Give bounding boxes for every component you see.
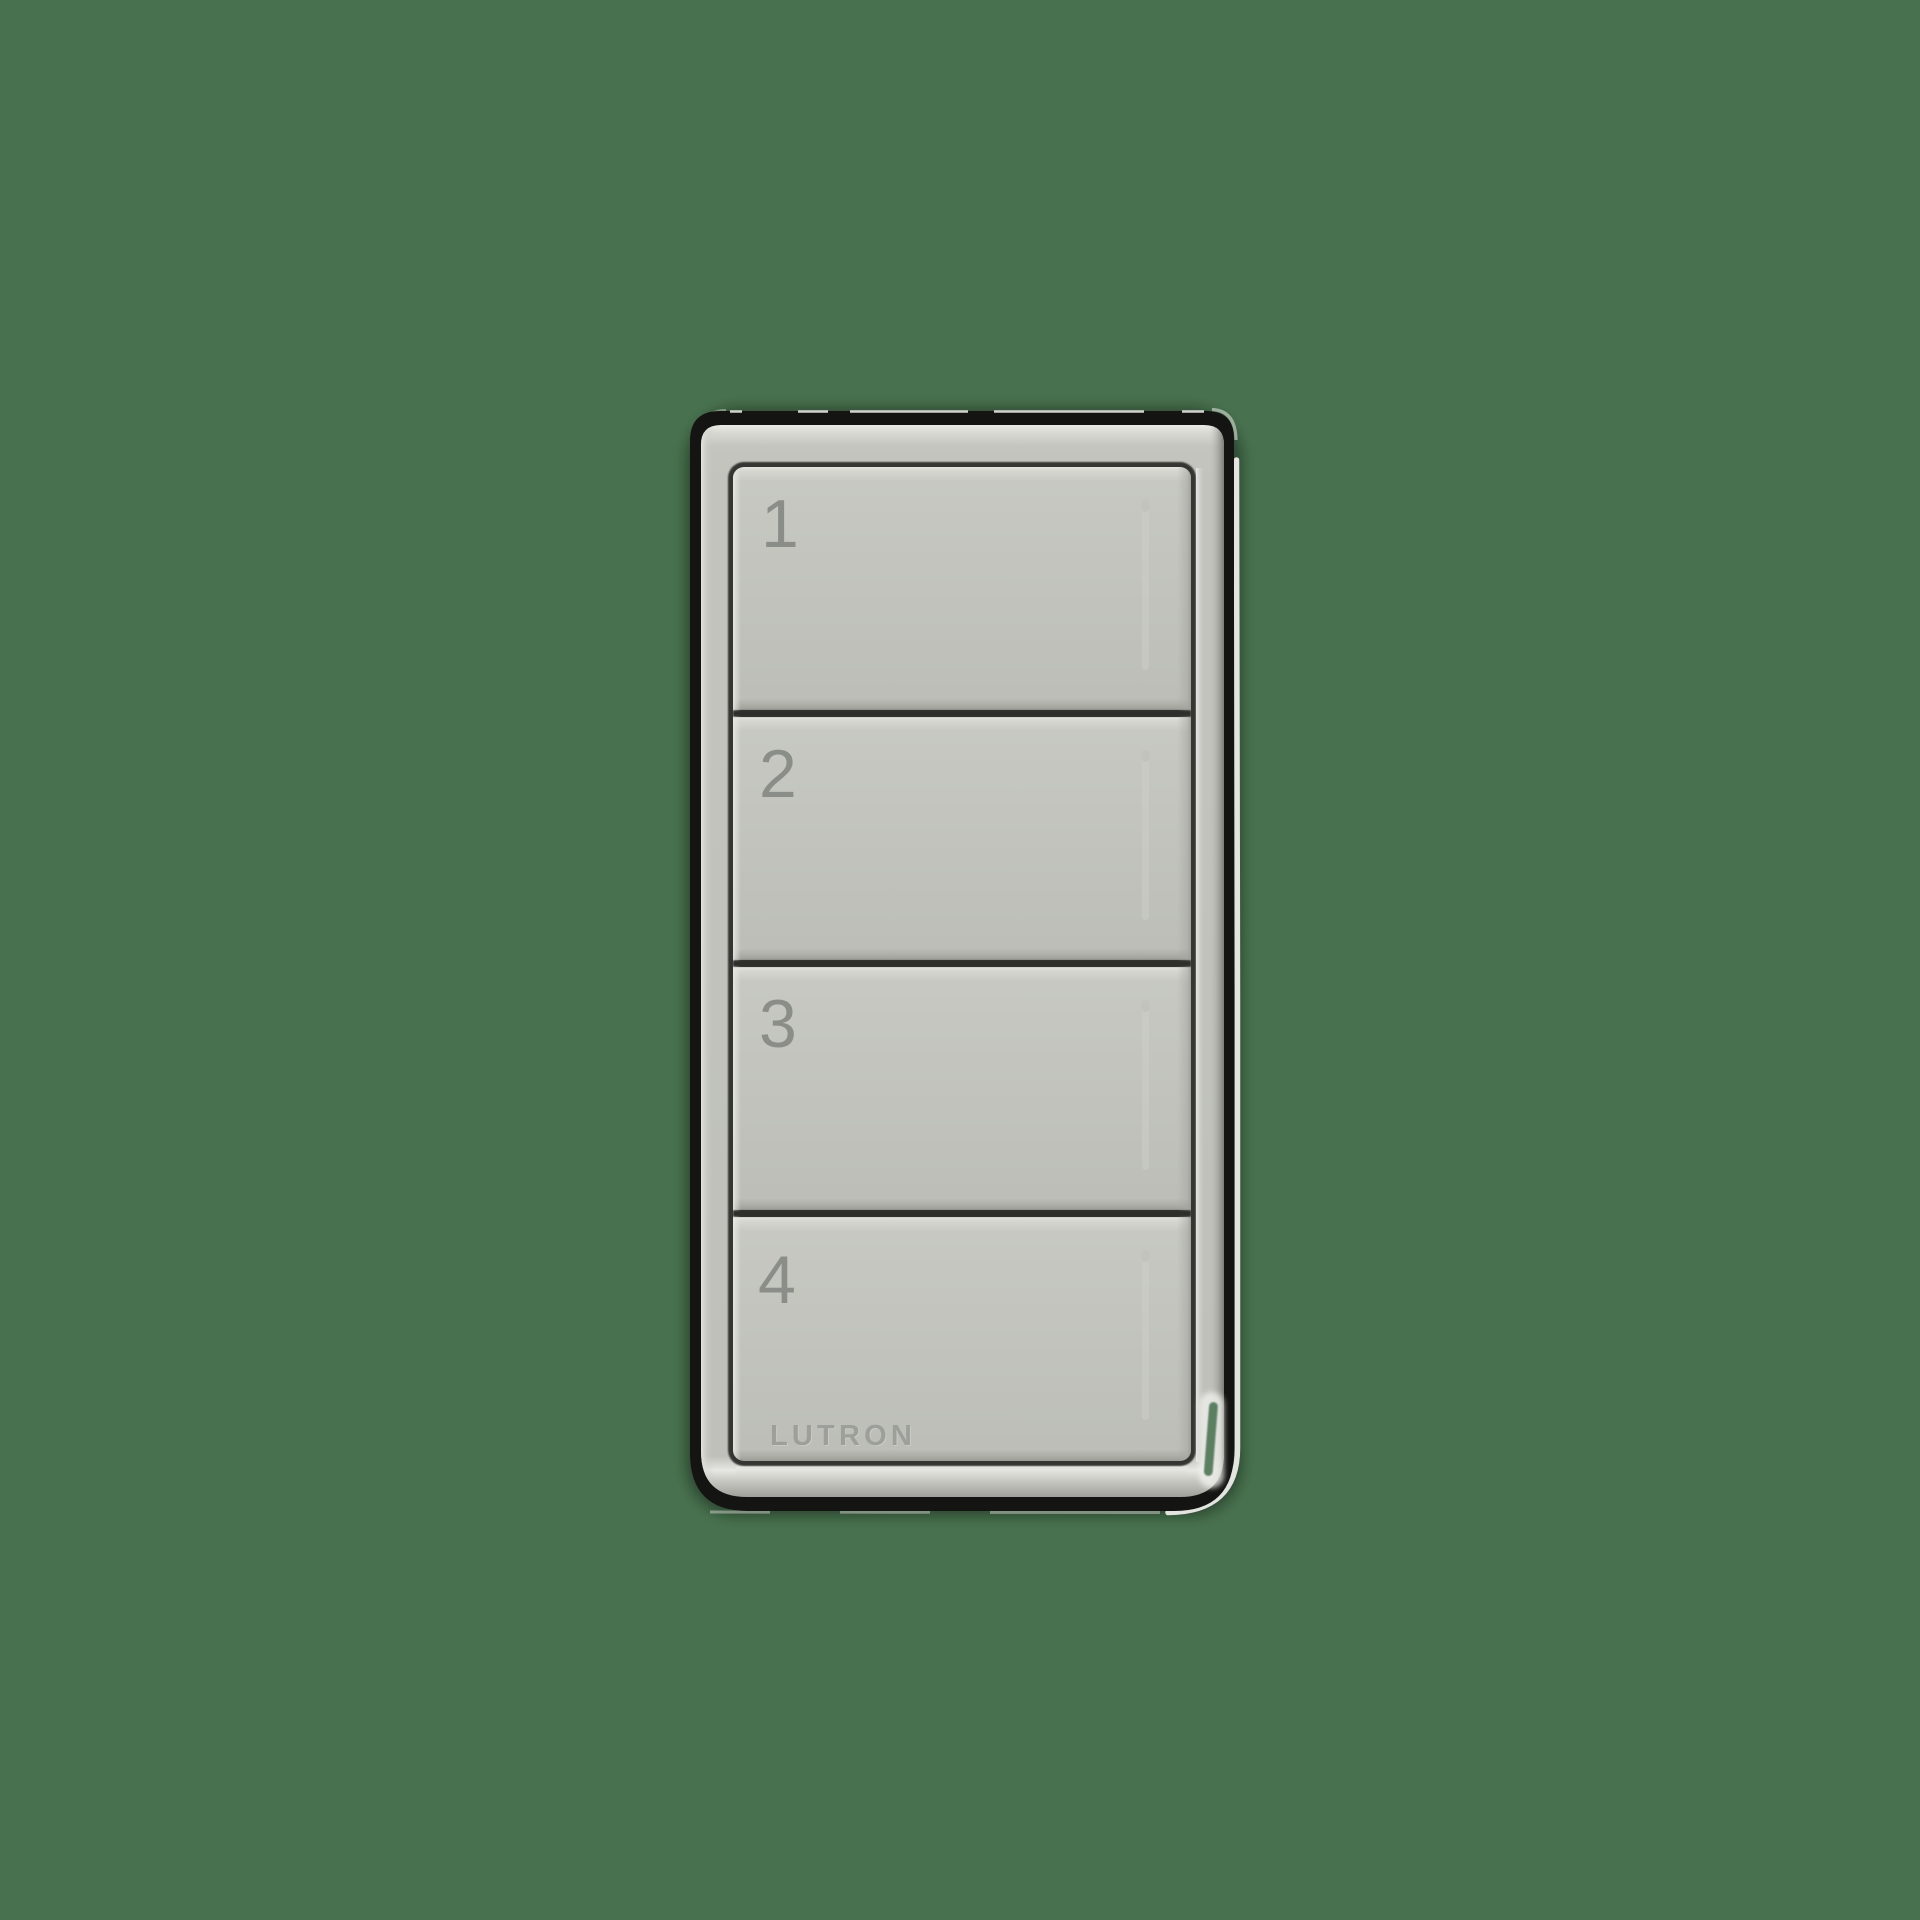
svg-text:1: 1 bbox=[761, 486, 799, 562]
svg-text:2: 2 bbox=[759, 736, 797, 812]
svg-text:4: 4 bbox=[758, 1242, 796, 1318]
svg-text:3: 3 bbox=[759, 986, 797, 1062]
svg-text:LUTRON: LUTRON bbox=[770, 1420, 916, 1452]
